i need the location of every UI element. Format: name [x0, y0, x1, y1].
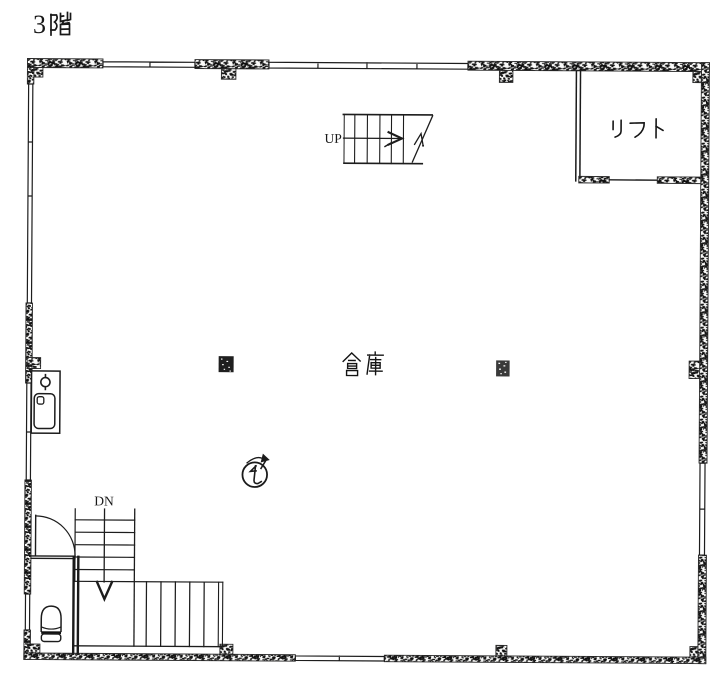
svg-text:UP: UP	[324, 131, 341, 146]
svg-text:DN: DN	[94, 493, 114, 508]
svg-text:3: 3	[33, 10, 46, 39]
